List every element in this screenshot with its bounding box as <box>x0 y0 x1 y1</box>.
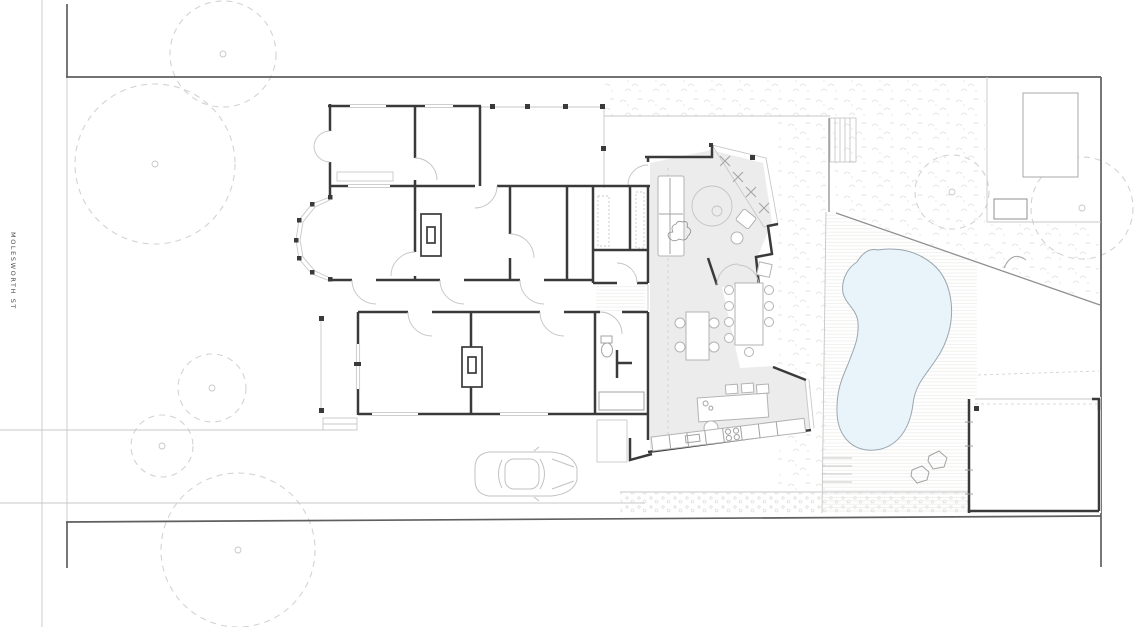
chair <box>675 342 685 352</box>
street-label: MOLESWORTH ST <box>9 232 17 310</box>
dining-chair <box>725 302 734 311</box>
site-plan: MOLESWORTH ST <box>0 0 1140 627</box>
deck-post <box>490 104 495 109</box>
dining-chair <box>725 334 734 343</box>
street: MOLESWORTH ST <box>9 0 42 627</box>
dining-chair <box>765 318 774 327</box>
garden-box <box>994 199 1027 219</box>
door-swings <box>314 131 637 336</box>
dining-chair <box>725 286 734 295</box>
wardrobe <box>337 172 393 181</box>
lawn-dotted-line <box>978 371 1099 375</box>
tree-canopy <box>131 415 193 477</box>
shed <box>1023 93 1078 177</box>
dining-chair <box>765 286 774 295</box>
chair <box>709 342 719 352</box>
deck-post <box>600 104 605 109</box>
dining-table <box>735 283 763 345</box>
bathtub <box>599 392 644 410</box>
bar-stool <box>725 384 738 394</box>
window-mullion <box>354 362 361 366</box>
deck-post <box>601 146 606 151</box>
side-table <box>757 262 772 277</box>
dining-chair <box>725 318 734 327</box>
entry-deck <box>597 420 627 462</box>
garage <box>965 397 1101 513</box>
middle-band-walls <box>330 186 593 281</box>
chair <box>709 318 719 328</box>
existing-house <box>294 104 650 440</box>
bar-stool <box>741 383 754 393</box>
toilet <box>602 343 613 357</box>
chair <box>675 318 685 328</box>
site-plan-drawing: MOLESWORTH ST <box>0 0 1140 627</box>
mirror <box>534 497 539 501</box>
kitchen-island <box>697 393 769 422</box>
west-porch <box>319 316 357 430</box>
bathroom <box>599 336 644 410</box>
tree-canopy <box>170 1 276 107</box>
south-wing-walls <box>358 312 648 415</box>
north-wing-walls <box>328 104 481 186</box>
shower-screen <box>617 350 632 378</box>
toilet-cistern <box>601 336 612 343</box>
breakfast-table <box>686 312 709 360</box>
tree-canopy <box>178 354 246 422</box>
tree-canopy <box>161 473 315 627</box>
dining-chair <box>765 302 774 311</box>
north-garden-strip <box>605 79 985 116</box>
windshield <box>540 459 545 489</box>
porch-post <box>319 408 324 413</box>
car-roof <box>505 459 539 489</box>
car <box>475 447 577 501</box>
tree-canopy <box>75 84 235 244</box>
sofa <box>658 176 684 256</box>
hood-lines <box>552 459 574 489</box>
deck-post <box>563 104 568 109</box>
mirror <box>534 447 539 451</box>
breezeway-deck <box>596 285 648 311</box>
south-boundary <box>66 516 1101 522</box>
stool-chair <box>731 232 743 244</box>
bar-stool <box>756 384 769 394</box>
bay-window <box>294 195 333 282</box>
porch-post <box>319 316 324 321</box>
deck-post <box>525 104 530 109</box>
pantry-shelves <box>598 192 644 248</box>
rear-window <box>499 460 503 488</box>
windows <box>348 104 548 415</box>
dining-chair <box>745 348 754 357</box>
